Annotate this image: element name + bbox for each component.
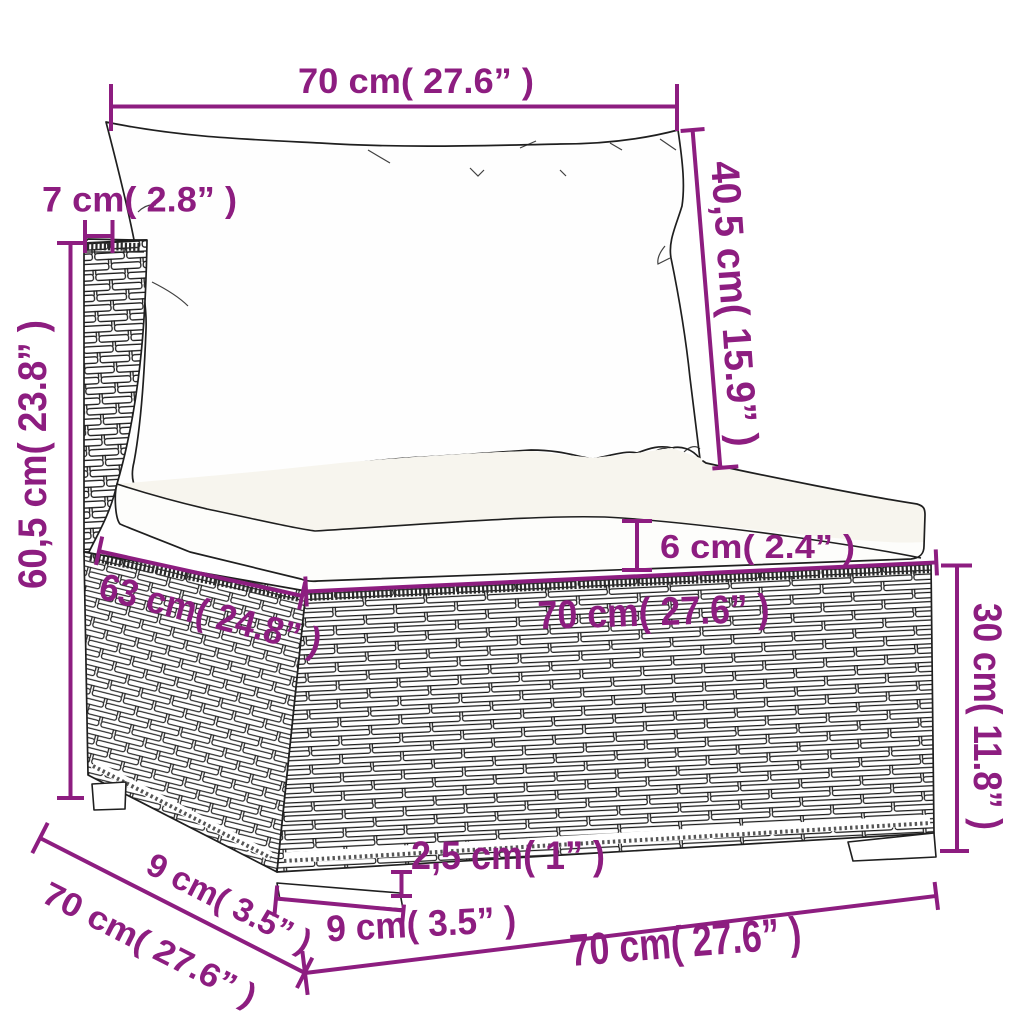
svg-text:2,5 cm( 1” ): 2,5 cm( 1” ) [411,834,605,878]
svg-text:70 cm( 27.6” ): 70 cm( 27.6” ) [537,587,770,638]
svg-text:6 cm( 2.4” ): 6 cm( 2.4” ) [660,529,855,566]
svg-text:7 cm( 2.8” ): 7 cm( 2.8” ) [42,181,237,220]
svg-text:60,5 cm( 23.8” ): 60,5 cm( 23.8” ) [11,320,55,589]
svg-text:30 cm( 11.8” ): 30 cm( 11.8” ) [965,603,1009,830]
svg-text:70 cm( 27.6” ): 70 cm( 27.6” ) [298,62,534,101]
